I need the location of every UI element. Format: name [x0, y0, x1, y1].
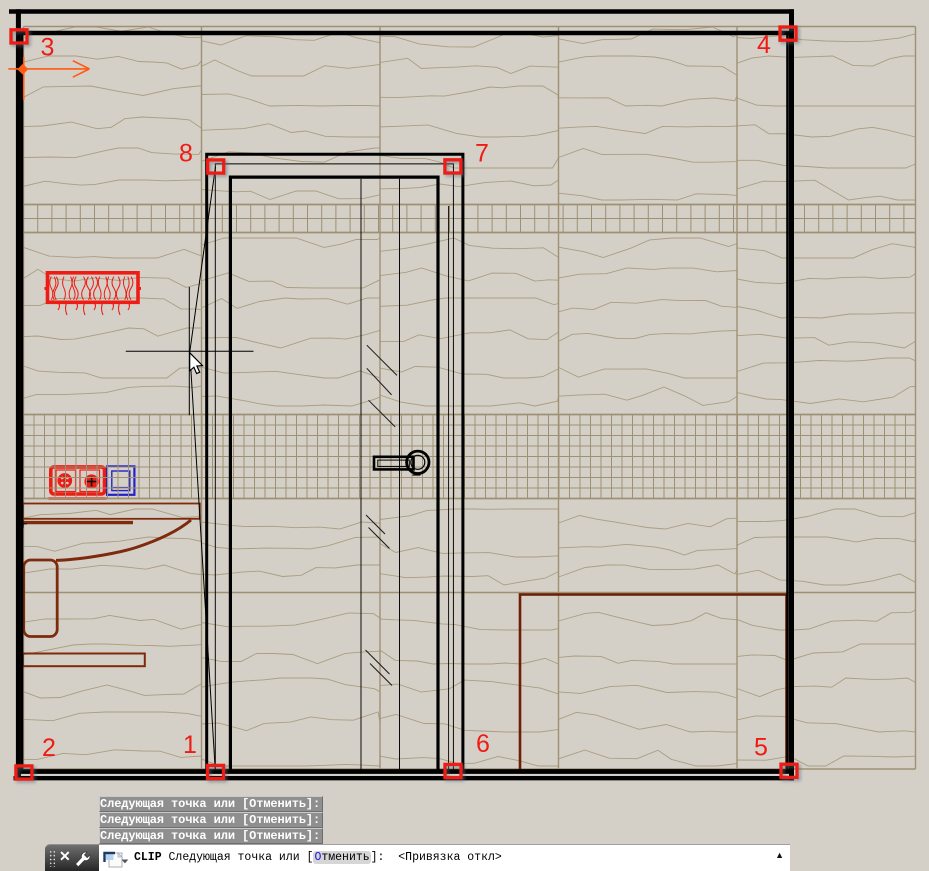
- svg-text:2: 2: [42, 734, 56, 762]
- svg-text:6: 6: [476, 730, 490, 758]
- svg-text:1: 1: [183, 731, 197, 759]
- svg-text:8: 8: [179, 140, 193, 168]
- svg-text:7: 7: [475, 140, 489, 168]
- svg-text:5: 5: [754, 734, 768, 762]
- svg-text:4: 4: [757, 31, 771, 59]
- svg-text:3: 3: [41, 34, 55, 62]
